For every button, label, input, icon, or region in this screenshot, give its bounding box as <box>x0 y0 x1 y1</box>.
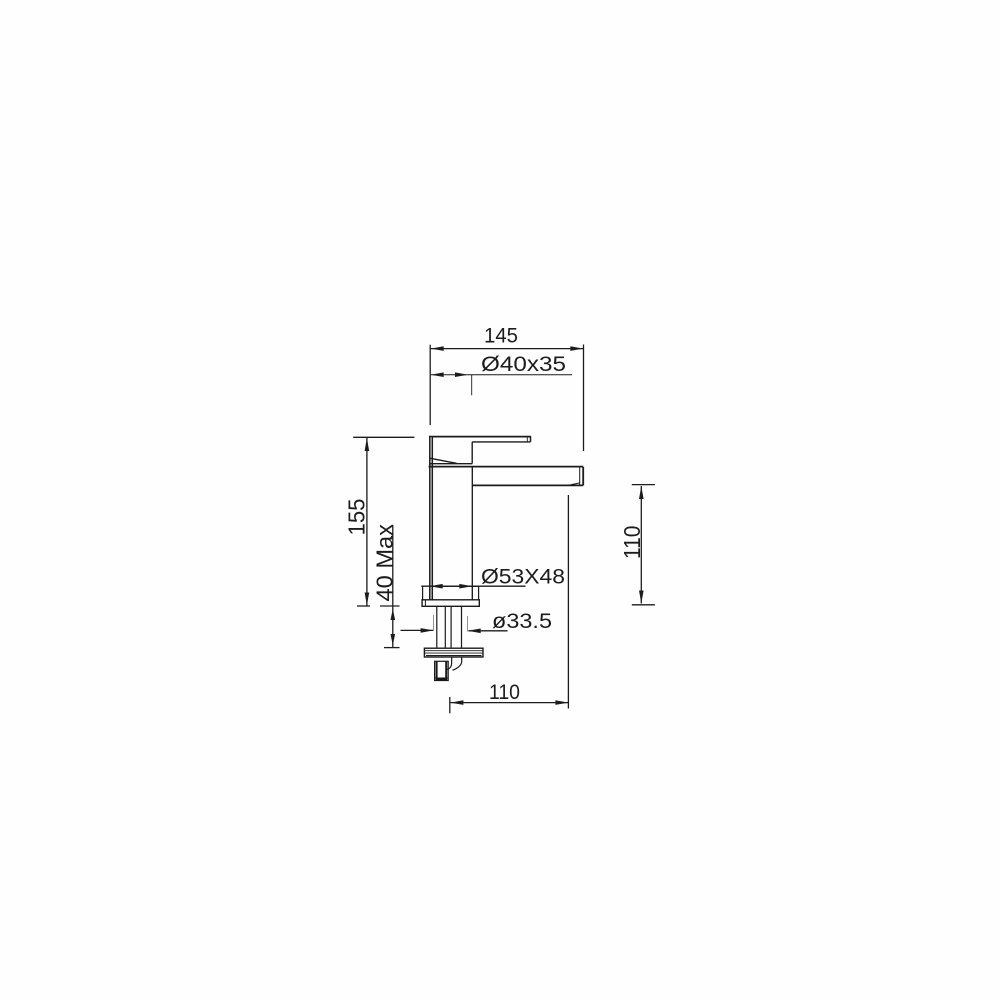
svg-text:155: 155 <box>344 499 370 536</box>
svg-text:110: 110 <box>489 680 520 704</box>
svg-text:145: 145 <box>484 324 518 348</box>
svg-text:ø33.5: ø33.5 <box>492 609 552 633</box>
svg-text:Ø53X48: Ø53X48 <box>481 565 565 589</box>
svg-text:40 Max: 40 Max <box>372 524 398 602</box>
svg-text:110: 110 <box>619 526 645 560</box>
svg-text:Ø40x35: Ø40x35 <box>481 352 566 376</box>
